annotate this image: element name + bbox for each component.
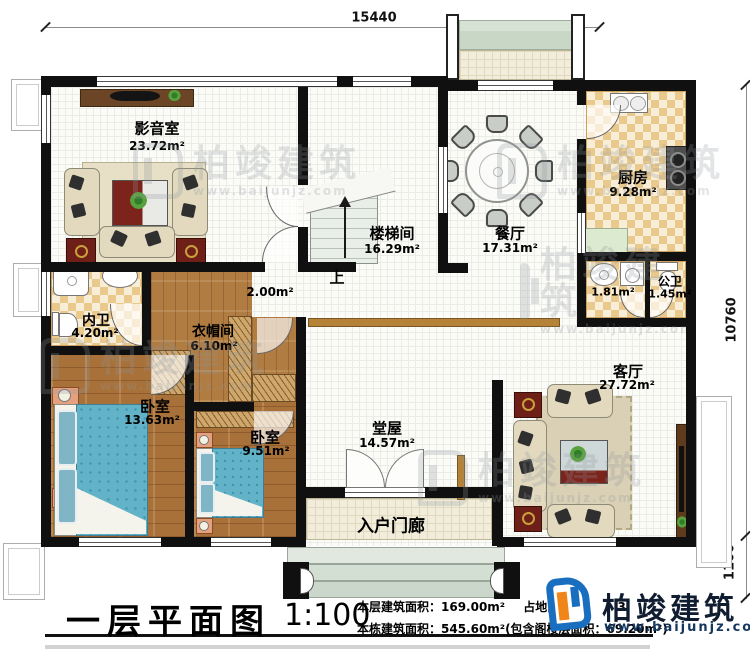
room-area-bedroom1: 13.63m²: [124, 413, 180, 427]
sofa-pillow: [181, 203, 196, 218]
room-name-media: 影音室: [134, 118, 179, 139]
entry-step: [287, 547, 505, 564]
wall: [577, 318, 695, 327]
wall: [616, 537, 696, 547]
room-area-kitchen: 9.28m²: [609, 185, 656, 199]
lamp-icon: [199, 521, 209, 531]
wall: [448, 80, 478, 91]
table-ornament: [75, 245, 88, 258]
window: [41, 272, 51, 316]
dining-chair: [486, 115, 508, 133]
dining-table-center: [493, 167, 503, 177]
basin-drain: [599, 270, 609, 280]
kitchen-counter: [584, 228, 628, 255]
wall: [425, 487, 497, 498]
room-area-stair: 16.29m²: [364, 242, 420, 256]
wall: [577, 139, 586, 213]
room-area-bedroom2: 9.51m²: [242, 444, 289, 458]
tv-icon: [679, 446, 684, 512]
dimension-line-right: [746, 84, 747, 537]
sofa-pillow: [518, 485, 533, 500]
lamp-icon: [58, 389, 71, 402]
wardrobe: [252, 374, 296, 402]
wall: [306, 487, 346, 498]
room-area-cloak: 6.10m²: [190, 339, 237, 353]
washer-drum: [625, 268, 640, 283]
wall: [41, 537, 79, 547]
wall: [438, 87, 448, 147]
stair-arrow-head: [339, 196, 351, 207]
room-area-media: 23.72m²: [129, 139, 185, 153]
window: [41, 95, 51, 143]
lamp-icon: [199, 435, 209, 445]
porch-column: [571, 14, 585, 80]
room-area-living: 27.72m²: [599, 378, 655, 392]
entry-step: [287, 564, 505, 581]
wall: [296, 317, 306, 546]
plant-icon: [168, 90, 181, 101]
toilet-tank: [52, 312, 59, 336]
bed-pillow: [199, 452, 215, 483]
dimension-right-value: 10760: [725, 294, 740, 345]
wall: [41, 262, 265, 272]
wall: [142, 262, 151, 355]
window: [97, 76, 337, 87]
wall: [271, 537, 306, 547]
brand-url: www.baijunjz.com: [604, 620, 750, 635]
table-ornament: [522, 398, 535, 411]
tv-icon: [110, 91, 160, 101]
french-door-threshold: [345, 487, 425, 498]
room-name-cloak: 衣帽间: [192, 321, 234, 341]
wall: [41, 76, 97, 87]
porch-column: [446, 14, 459, 80]
wall: [337, 76, 353, 87]
rear-porch-steps: [459, 20, 572, 50]
dimension-line-right-porch: [746, 537, 747, 599]
stair-up-label: 上: [329, 267, 344, 288]
wall: [686, 80, 696, 546]
coffee-table: [560, 440, 608, 484]
sliding-door: [478, 80, 553, 91]
dimension-top-value: 15440: [348, 11, 399, 26]
wall: [577, 252, 695, 261]
exterior-window-sill: [11, 79, 44, 131]
dining-chair: [535, 160, 553, 182]
window: [211, 537, 271, 547]
wood-beam: [308, 318, 560, 327]
wall: [298, 87, 308, 185]
window: [438, 147, 448, 213]
title-gray-rule: [45, 645, 650, 649]
room-area-dining: 17.31m²: [482, 241, 538, 255]
brand-logo-icon: [545, 575, 601, 636]
entry-step: [287, 581, 505, 598]
wall: [194, 402, 254, 411]
sink-basin: [630, 96, 646, 111]
bed-pillow: [57, 468, 77, 524]
room-area-pubbath: 1.45m²: [648, 288, 691, 301]
window: [577, 213, 586, 253]
floor-area-text: 本层建筑面积：169.00m²: [357, 600, 505, 614]
bed-pillow: [199, 483, 215, 514]
floor-plan-canvas: 15440 10760 1100: [0, 0, 750, 653]
room-area-hall: 14.57m²: [359, 436, 415, 450]
wall: [411, 76, 448, 87]
window: [353, 76, 411, 87]
wall: [577, 80, 689, 91]
shower-drain: [67, 276, 77, 286]
window: [79, 537, 161, 547]
room-area-wash: 1.81m²: [591, 286, 634, 299]
rear-porch-floor: [459, 50, 572, 80]
side-platform: [696, 396, 732, 568]
bed-pillow: [57, 410, 77, 466]
room-area-innerbath: 4.20m²: [71, 326, 118, 340]
table-ornament: [185, 245, 198, 258]
burner-icon: [670, 170, 686, 186]
room-name-stair: 楼梯间: [369, 223, 414, 244]
wall: [161, 537, 211, 547]
exterior-window-sill: [3, 543, 45, 600]
wall: [438, 263, 468, 273]
plant-icon: [130, 192, 147, 209]
exterior-window-sill: [13, 263, 44, 317]
room-name-porch: 入户门廊: [357, 512, 425, 537]
wall: [492, 380, 503, 546]
window: [524, 537, 616, 547]
plan-title: 一层平面图: [66, 594, 271, 643]
stair-arrow-shaft: [344, 206, 346, 258]
toilet-tank: [656, 262, 678, 271]
plant-icon: [570, 446, 586, 462]
wall: [577, 91, 586, 105]
wall: [298, 262, 356, 272]
room-area-hallway: 2.00m²: [246, 285, 293, 299]
wall: [497, 537, 524, 547]
wall: [41, 346, 151, 355]
wall: [185, 355, 194, 546]
table-ornament: [522, 512, 535, 525]
burner-icon: [670, 152, 686, 168]
